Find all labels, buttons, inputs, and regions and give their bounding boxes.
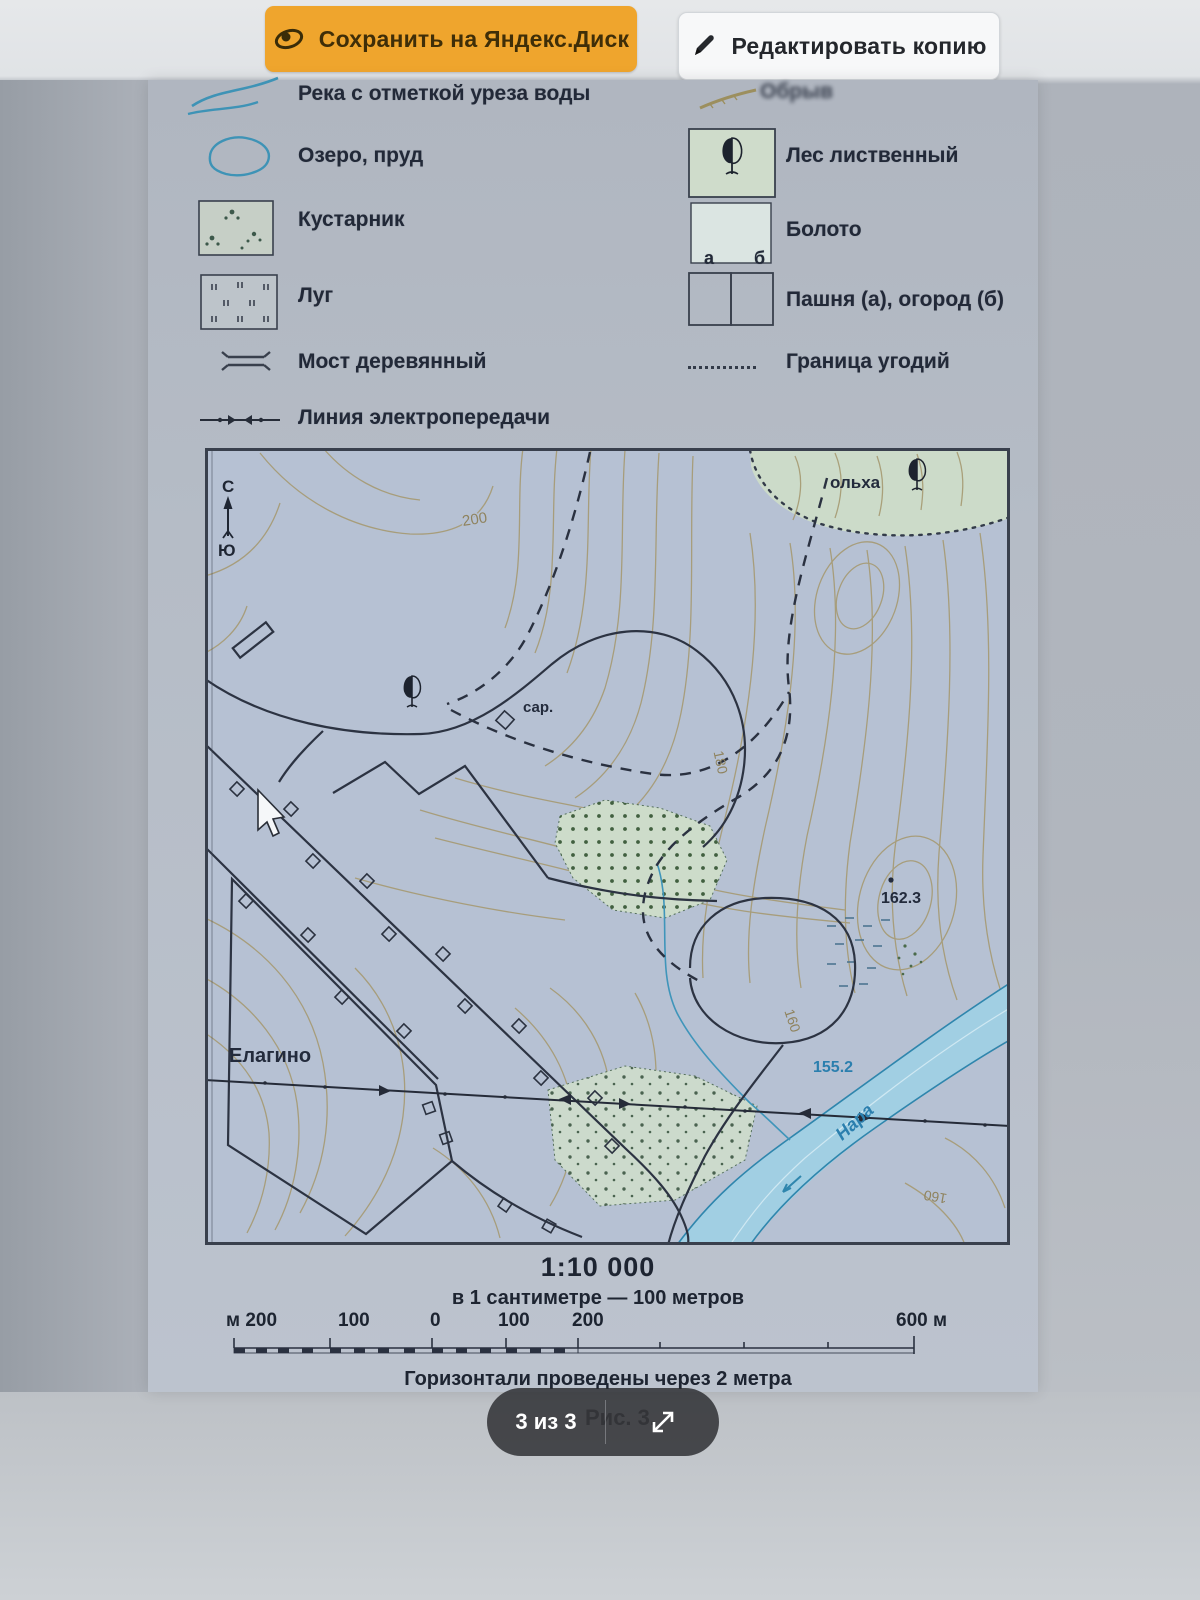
save-to-yandex-disk-button[interactable]: Сохранить на Яндекс.Диск <box>265 6 637 72</box>
map-label-village: Елагино <box>229 1045 311 1067</box>
compass-north-label: С <box>222 477 234 496</box>
topographic-map: С Ю 200 180 160 160 ольха сар. 162.3 Ела… <box>205 448 1010 1245</box>
map-label-alder: ольха <box>830 473 881 492</box>
scale-tick-100l: 100 <box>338 1310 370 1332</box>
legend-label-field-garden: Пашня (а), огород (б) <box>786 288 1004 312</box>
legend-label-shrub: Кустарник <box>298 208 405 232</box>
legend-label-lake: Озеро, пруд <box>298 144 423 168</box>
legend-label-powerline: Линия электропередачи <box>298 406 550 430</box>
map-label-water-edge: 155.2 <box>813 1059 853 1076</box>
lake-icon <box>200 130 280 182</box>
legend-sublabel-b: б <box>754 248 765 269</box>
legend-label-swamp: Болото <box>786 218 862 242</box>
screen-photo: Сохранить на Яндекс.Диск Редактировать к… <box>0 0 1200 1600</box>
power-line-icon <box>198 408 282 432</box>
scale-ratio: 1:10 000 <box>541 1252 656 1283</box>
document-page: Река с отметкой уреза воды Озеро, пруд К… <box>148 80 1038 1392</box>
scale-bar <box>218 1336 938 1362</box>
scale-tick-0: 0 <box>430 1310 441 1332</box>
background-left <box>0 80 150 1600</box>
scale-tick-200l: м 200 <box>226 1310 277 1332</box>
scale-tick-600: 600 м <box>896 1310 947 1332</box>
deciduous-forest-icon <box>688 128 776 198</box>
land-boundary-icon <box>688 366 756 369</box>
legend-label-boundary: Граница угодий <box>786 350 950 374</box>
field-garden-icon <box>688 272 774 326</box>
pencil-icon <box>691 33 717 59</box>
legend-label-bridge: Мост деревянный <box>298 350 486 374</box>
shrub-icon <box>198 200 274 256</box>
edit-button-label: Редактировать копию <box>731 33 986 60</box>
yandex-disk-icon <box>273 24 305 54</box>
wooden-bridge-icon <box>220 346 272 376</box>
cliff-icon <box>696 86 760 112</box>
expand-icon <box>649 1408 677 1436</box>
legend-label-river: Река с отметкой уреза воды <box>298 82 590 106</box>
legend-sublabel-a: а <box>704 248 714 269</box>
pager-pill[interactable]: 3 из 3 <box>487 1388 719 1456</box>
legend-label-meadow: Луг <box>298 284 333 308</box>
river-lines-icon <box>186 74 286 120</box>
scale-tick-200r: 200 <box>572 1310 604 1332</box>
legend-label-forest: Лес лиственный <box>786 144 958 168</box>
scale-tick-100r: 100 <box>498 1310 530 1332</box>
save-button-label: Сохранить на Яндекс.Диск <box>319 26 629 53</box>
map-label-shed: сар. <box>523 699 553 716</box>
meadow-icon <box>200 274 278 330</box>
edit-copy-button[interactable]: Редактировать копию <box>678 12 1000 80</box>
scale-note: в 1 сантиметре — 100 метров <box>452 1287 744 1310</box>
fullscreen-button[interactable] <box>606 1408 719 1436</box>
page-counter: 3 из 3 <box>487 1409 605 1435</box>
legend-label-cliff: Обрыв <box>760 80 833 104</box>
map-label-spot-height: 162.3 <box>881 890 921 907</box>
compass-south-label: Ю <box>218 541 236 560</box>
